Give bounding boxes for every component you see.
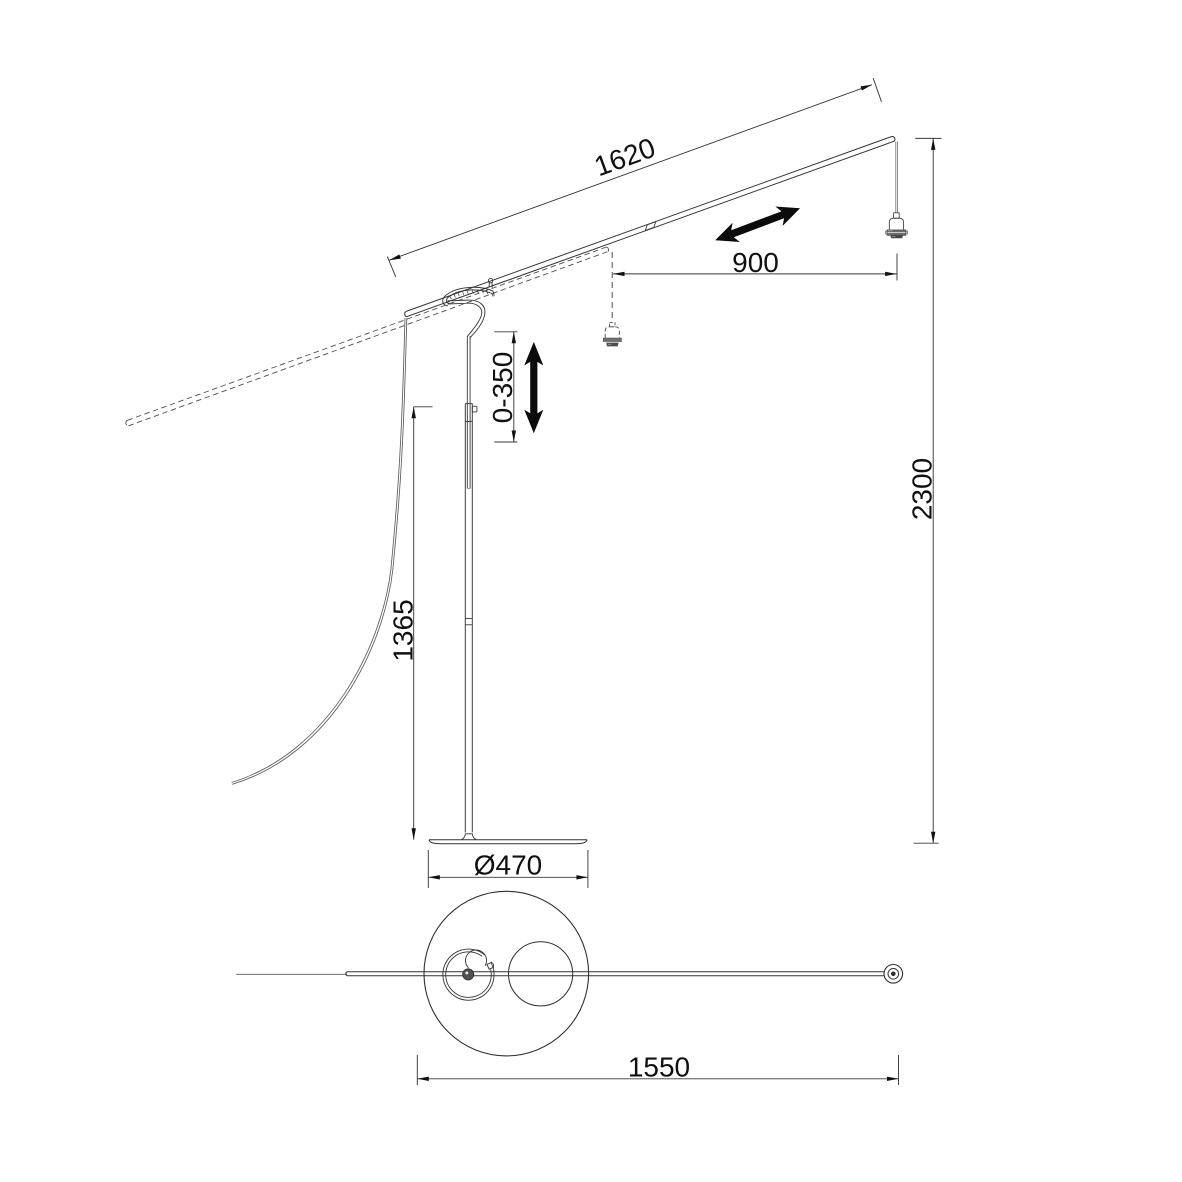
svg-text:0-350: 0-350 <box>487 352 518 424</box>
svg-text:2300: 2300 <box>907 458 938 520</box>
svg-text:Ø470: Ø470 <box>474 850 543 881</box>
svg-text:1365: 1365 <box>387 599 418 661</box>
svg-text:1550: 1550 <box>628 1052 690 1083</box>
svg-text:900: 900 <box>732 247 779 278</box>
